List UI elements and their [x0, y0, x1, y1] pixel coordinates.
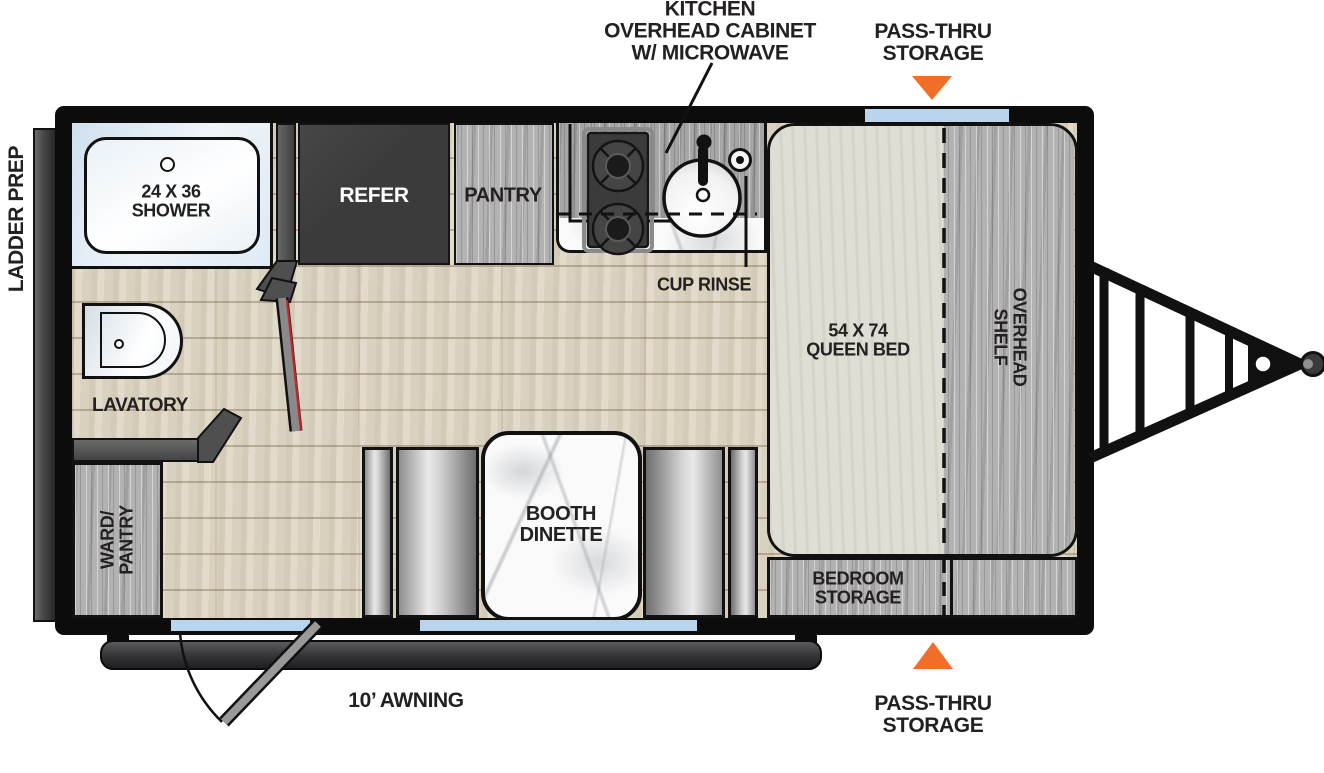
shower-drain-icon: [160, 157, 175, 172]
cup-rinse-label: CUP RINSE: [657, 276, 751, 295]
coupler-hole-icon: [1255, 356, 1272, 373]
awning-bar: [100, 640, 822, 670]
floorplan: KITCHEN OVERHEAD CABINET W/ MICROWAVE PA…: [0, 0, 1324, 773]
toilet: [82, 303, 183, 379]
queen-bed-label: 54 X 74 QUEEN BED: [806, 321, 909, 358]
lavatory-wall: [72, 438, 200, 462]
bathroom-wall: [276, 123, 296, 263]
toilet-bowl: [100, 312, 166, 368]
refrigerator-label: REFER: [339, 185, 408, 207]
dinette-bench-left: [396, 447, 479, 618]
hitch-a-frame: [1090, 266, 1324, 458]
kitchen-overhead-label: KITCHEN OVERHEAD CABINET W/ MICROWAVE: [604, 0, 816, 64]
entry-door: [180, 624, 318, 722]
ladder-prep-label: LADDER PREP: [6, 146, 28, 292]
booth-dinette-label: BOOTH DINETTE: [520, 504, 603, 546]
awning-label: 10’ AWNING: [348, 690, 463, 712]
entry-door-window: [171, 620, 310, 631]
hitch-ball-icon: [1302, 353, 1324, 376]
countertop-marble: [559, 218, 764, 250]
storage-divider: [950, 560, 953, 615]
bedroom-window: [865, 109, 1009, 122]
ward-pantry-label: WARD/ PANTRY: [98, 505, 135, 575]
pass-thru-arrow-top-icon: [912, 76, 952, 100]
shower-label: 24 X 36 SHOWER: [132, 182, 211, 219]
pantry-label: PANTRY: [464, 186, 542, 207]
pass-thru-storage-bottom-label: PASS-THRU STORAGE: [874, 693, 991, 737]
lavatory-label: LAVATORY: [92, 396, 188, 416]
bedroom-storage-label: BEDROOM STORAGE: [812, 569, 903, 606]
dinette-bench-left-end: [362, 447, 393, 618]
dinette-bench-right-end: [728, 447, 758, 618]
kitchen-counter: [556, 123, 767, 253]
toilet-flush-icon: [114, 339, 124, 349]
pass-thru-arrow-bottom-icon: [913, 642, 953, 669]
coupler: [1248, 336, 1302, 392]
overhead-shelf-label: OVERHEAD SHELF: [991, 288, 1028, 387]
pass-thru-storage-top-label: PASS-THRU STORAGE: [874, 21, 991, 65]
dinette-bench-right: [643, 447, 725, 618]
dinette-window: [420, 620, 697, 631]
